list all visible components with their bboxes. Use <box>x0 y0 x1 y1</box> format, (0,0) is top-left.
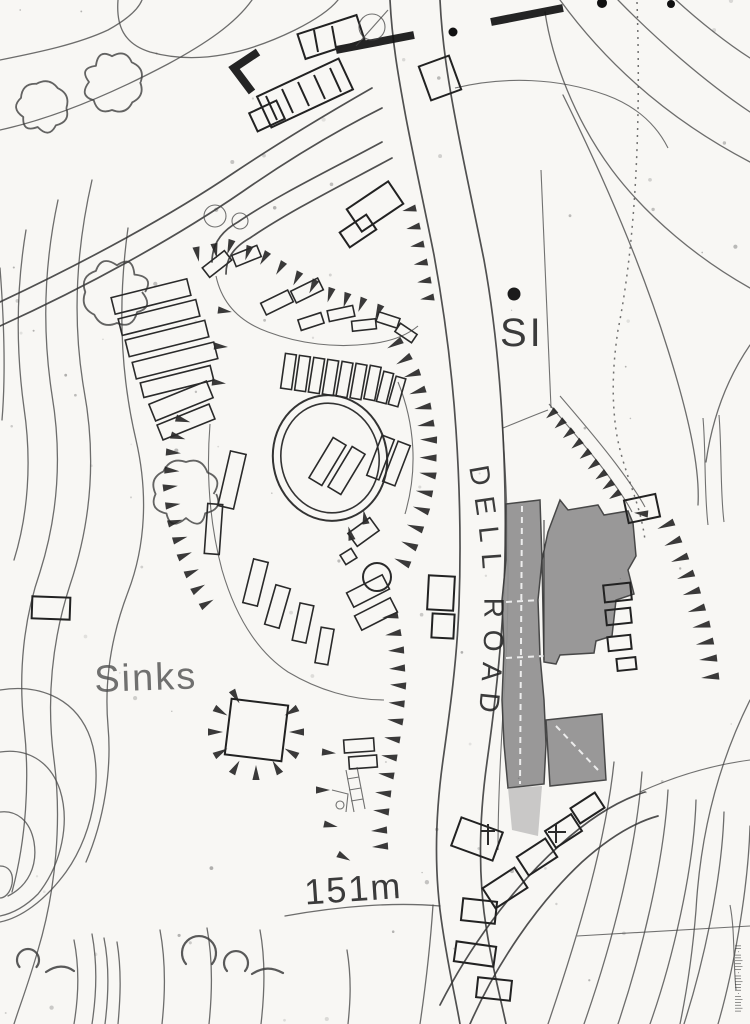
scan-speckle <box>395 893 398 896</box>
scan-speckle <box>311 674 315 678</box>
scan-speckle <box>701 252 703 254</box>
scan-speckle <box>252 97 254 99</box>
scan-speckle <box>94 953 98 957</box>
hachure-tick <box>409 386 426 395</box>
scan-speckle <box>20 332 23 335</box>
caravan-rect <box>355 598 398 630</box>
scan-speckle <box>438 154 442 158</box>
scan-speckle <box>322 118 326 122</box>
hachure-tick <box>401 542 418 552</box>
caravan-rect <box>125 320 209 356</box>
omega-symbols <box>17 936 283 974</box>
hachure-tick <box>413 507 430 516</box>
scan-speckle <box>620 578 621 579</box>
hachure-tick <box>385 629 401 636</box>
hachure-tick <box>390 682 406 689</box>
building-outline <box>616 657 636 671</box>
hachure-tick <box>371 826 387 833</box>
hachure-tick <box>184 569 199 578</box>
scan-speckle <box>153 282 157 286</box>
hachure-tick <box>580 448 593 459</box>
scan-speckle <box>262 154 266 158</box>
illegible-edge-text: l|ll|l·lll|ll·l|l|ll·ll <box>734 944 743 1012</box>
scan-speckle <box>435 828 438 831</box>
hachure-tick <box>336 851 350 861</box>
route-arrowhead <box>234 52 258 92</box>
scan-speckle <box>80 10 82 12</box>
cross-mark <box>481 824 495 845</box>
hachure-tick <box>701 672 719 679</box>
building-outline <box>225 699 288 762</box>
scan-speckle <box>420 613 424 617</box>
gray-building-complex <box>502 500 636 836</box>
hachure-tick <box>402 204 416 211</box>
hachure-tick <box>163 484 178 491</box>
hachure-tick <box>407 525 424 534</box>
hachure-tick <box>323 820 337 827</box>
hachure-tick <box>172 537 187 545</box>
scan-speckle <box>723 141 726 144</box>
building-outline <box>517 839 557 876</box>
hachure-tick <box>394 559 411 569</box>
scan-speckle <box>437 76 441 80</box>
steps-feature <box>346 767 365 812</box>
caravan-rect <box>349 755 378 769</box>
hachure-tick <box>406 222 420 229</box>
hachure-tick <box>208 728 223 735</box>
route-dot <box>449 28 458 37</box>
hachure-tick <box>414 258 428 265</box>
caravan-rect <box>281 353 297 389</box>
scan-speckle <box>217 446 219 448</box>
hachure-tick <box>285 749 300 760</box>
hachure-tick <box>260 250 271 265</box>
caravan-rect <box>340 548 357 564</box>
scan-speckle <box>402 58 405 61</box>
building-outline <box>451 817 503 860</box>
hachure-tick <box>388 646 404 653</box>
caravan-rect <box>292 603 314 643</box>
scan-speckle <box>90 464 93 467</box>
caravan-rect <box>118 300 200 336</box>
scan-speckle <box>283 1019 286 1022</box>
caravan-rect <box>376 312 400 328</box>
hachure-tick <box>229 761 240 776</box>
hachure-tick <box>416 490 433 497</box>
caravan-rect <box>327 305 355 321</box>
building-outline <box>32 596 71 619</box>
caravan-rect <box>344 738 375 753</box>
caravan-rect <box>261 290 294 315</box>
tree-symbol <box>85 53 142 111</box>
scan-speckle <box>130 496 132 498</box>
scan-speckle <box>230 160 234 164</box>
building-outline <box>257 59 353 128</box>
scan-speckle <box>102 339 103 340</box>
caravan-rect <box>298 313 324 331</box>
hachure-tick <box>419 472 436 479</box>
hachure-tick <box>657 519 675 529</box>
hachure-tick <box>420 436 437 443</box>
hachure-tick <box>571 438 583 449</box>
hachure-tick <box>252 765 259 780</box>
scan-speckle <box>174 449 178 453</box>
scan-speckle <box>425 880 429 884</box>
hachure-tick <box>555 417 567 428</box>
hachure-tick <box>273 761 284 776</box>
road-name-label: DELL ROAD <box>463 463 509 725</box>
tree-symbol <box>16 81 67 132</box>
hachure-tick <box>417 419 434 426</box>
scan-speckle <box>510 869 514 873</box>
scan-speckle <box>194 320 196 322</box>
hachure-tick <box>381 754 397 761</box>
caravan-rect <box>347 575 390 607</box>
scan-speckle <box>33 330 35 332</box>
scan-speckle <box>273 206 277 210</box>
hachure-tick <box>289 728 304 735</box>
caravan-rect <box>265 585 291 629</box>
scan-speckle <box>679 567 681 569</box>
tree-symbol <box>84 261 148 325</box>
hachure-tick <box>378 772 394 779</box>
hachure-tick <box>699 654 717 661</box>
hachure-tick <box>588 459 601 470</box>
building-outline <box>570 793 604 824</box>
scan-speckle <box>569 214 572 217</box>
scan-speckle <box>544 867 547 870</box>
hachure-tick <box>316 786 330 793</box>
scan-speckle <box>392 930 395 933</box>
hachure-tick <box>276 260 287 275</box>
topographic-map: SI DELL ROAD Sinks 151m l|ll|l·lll|ll·l|… <box>0 0 750 1024</box>
hachure-tick <box>563 427 575 438</box>
hachure-tick <box>696 637 714 644</box>
building-outline <box>607 635 631 651</box>
scan-speckle <box>622 931 626 935</box>
hachure-tick <box>199 600 214 611</box>
route-dot <box>667 0 675 8</box>
caravan-rect <box>243 559 268 606</box>
scan-speckle <box>630 418 632 420</box>
scan-speckle <box>477 847 480 850</box>
scan-speckle <box>626 319 629 322</box>
scan-speckle <box>588 979 590 981</box>
scan-speckle <box>5 1012 7 1014</box>
scan-speckle <box>178 934 181 937</box>
caravan-rect <box>218 451 246 509</box>
scan-speckle <box>119 672 121 674</box>
building-outline <box>427 575 455 610</box>
scan-speckle <box>214 208 218 212</box>
hachure-tick <box>164 466 179 473</box>
sinks-label: Sinks <box>94 655 198 701</box>
hachure-tick <box>420 454 437 461</box>
hachure-tick <box>417 276 431 283</box>
scan-speckle <box>461 651 464 654</box>
scan-speckle <box>36 875 38 877</box>
hachure-tick <box>322 748 336 755</box>
route-dot <box>597 0 607 8</box>
caravan-rect <box>388 376 406 407</box>
hachure-tick <box>384 736 400 743</box>
scan-speckle <box>16 299 20 303</box>
scan-speckle <box>49 1005 53 1009</box>
scan-speckle <box>733 245 737 249</box>
hachure-tick <box>595 469 608 479</box>
hachure-tick <box>664 536 682 546</box>
scan-speckle <box>330 183 334 187</box>
hachure-tick <box>387 718 403 725</box>
hachure-tick <box>344 292 352 307</box>
caravan-rect <box>308 357 324 393</box>
hachure-tick <box>373 808 389 815</box>
scan-speckle <box>210 866 214 870</box>
scan-speckle <box>19 9 21 11</box>
scan-speckle <box>325 1017 329 1021</box>
scan-speckle <box>13 266 15 268</box>
caravan-rect <box>315 627 334 665</box>
hachure-tick <box>389 700 405 707</box>
building-outline <box>476 977 512 1000</box>
hachure-tick <box>165 502 180 509</box>
hachure-tick <box>293 270 303 285</box>
hachure-tick <box>372 842 388 849</box>
scan-speckle <box>311 281 315 285</box>
scan-speckle <box>729 0 733 3</box>
scan-speckle <box>289 611 293 615</box>
hachure-tick <box>677 570 695 579</box>
scanned-map-page: SI DELL ROAD Sinks 151m l|ll|l·lll|ll·l|… <box>0 0 750 1024</box>
hachure-tick <box>375 790 391 797</box>
hachure-tick <box>175 415 190 423</box>
hachure-tick <box>166 448 181 455</box>
scan-speckle <box>453 948 455 950</box>
scan-speckle <box>645 791 647 793</box>
hachure-tick <box>404 369 421 378</box>
scan-speckle <box>156 52 158 54</box>
hachure-tick <box>609 489 622 499</box>
hachure-tick <box>177 552 192 561</box>
scan-speckle <box>189 941 192 944</box>
scan-speckle <box>64 374 67 377</box>
caravan-rect <box>328 446 365 494</box>
hachure-tick <box>692 620 710 627</box>
scan-speckle <box>421 872 422 873</box>
building-outline <box>347 181 404 231</box>
scan-speckle <box>385 761 387 763</box>
scan-speckle <box>712 28 716 32</box>
hachure-tick <box>683 587 701 596</box>
hachure-tick <box>414 402 431 409</box>
hachure-tick <box>546 407 558 418</box>
scan-speckle <box>329 274 332 277</box>
scan-speckle <box>648 178 652 182</box>
scan-speckle <box>651 208 654 211</box>
scan-speckle <box>469 743 472 746</box>
scan-speckle <box>312 337 314 339</box>
scan-speckle <box>133 696 137 700</box>
building-outline <box>483 868 528 909</box>
hachure-tick <box>602 479 615 489</box>
hachure-tick <box>358 297 367 312</box>
scan-speckle <box>43 890 46 893</box>
quarry-hachures <box>163 204 720 860</box>
hachure-tick <box>688 604 706 613</box>
scan-speckle <box>511 310 512 311</box>
building-outline <box>461 898 497 923</box>
scan-speckle <box>418 485 421 488</box>
caravan-rect <box>295 355 311 391</box>
scan-speckle <box>625 366 627 368</box>
scan-speckle <box>584 427 587 430</box>
caravan-rect <box>367 435 395 480</box>
scan-speckle <box>130 444 132 446</box>
hachure-tick <box>420 293 434 300</box>
elevation-label: 151m <box>303 865 404 913</box>
spot-height-dot <box>508 288 521 301</box>
scan-speckle <box>10 425 13 428</box>
building-outline <box>431 613 454 638</box>
scan-speckle <box>263 319 266 322</box>
scan-speckle <box>74 394 77 397</box>
scan-speckle <box>479 472 481 474</box>
scan-speckle <box>271 492 273 494</box>
scan-speckle <box>731 723 732 724</box>
scan-speckle <box>84 635 88 639</box>
scan-speckle <box>555 903 557 905</box>
hachure-tick <box>217 306 231 313</box>
caravan-rect <box>309 437 346 485</box>
scan-speckle <box>661 780 664 783</box>
building-outline <box>340 215 377 248</box>
caravan-rect <box>348 518 379 547</box>
hachure-tick <box>190 585 205 596</box>
caravan-rect <box>132 342 218 379</box>
scan-speckle <box>337 559 340 562</box>
hachure-tick <box>167 520 182 528</box>
hachure-tick <box>410 240 424 247</box>
map-labels: SI DELL ROAD Sinks 151m l|ll|l·lll|ll·l|… <box>94 311 743 1012</box>
building-outline <box>298 15 365 59</box>
scan-speckle <box>195 391 197 393</box>
scan-speckle <box>171 711 172 712</box>
scan-speckle <box>485 575 487 577</box>
scan-speckle <box>518 777 520 779</box>
hachure-tick <box>396 353 413 364</box>
caravan-rect <box>352 319 377 331</box>
bold-dashed-route <box>234 0 675 92</box>
hachure-tick <box>671 553 689 562</box>
spot-marker-label: SI <box>500 311 544 355</box>
hachure-tick <box>213 705 228 716</box>
hachure-tick <box>192 246 199 261</box>
hachure-tick <box>328 287 336 302</box>
scan-speckle <box>140 566 143 569</box>
hachure-tick <box>389 664 405 671</box>
